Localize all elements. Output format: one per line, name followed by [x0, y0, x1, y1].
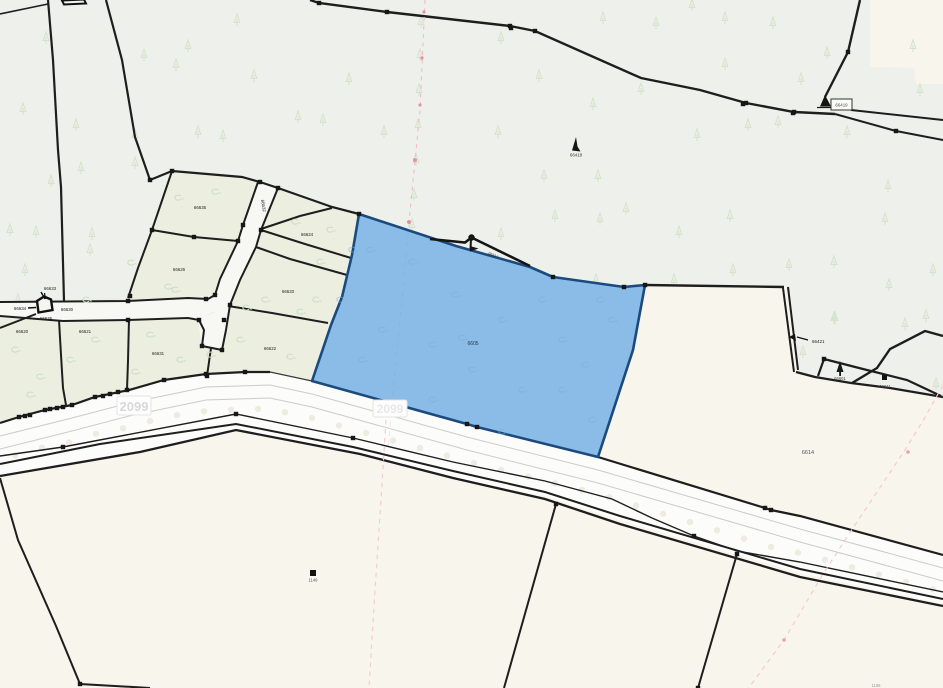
svg-text:6614: 6614 [802, 450, 814, 456]
svg-text:2099: 2099 [377, 402, 404, 416]
svg-text:1149: 1149 [308, 578, 318, 583]
svg-text:66620: 66620 [16, 329, 29, 334]
svg-text:66626: 66626 [173, 267, 186, 272]
svg-text:1158: 1158 [871, 683, 881, 688]
svg-text:66419: 66419 [835, 103, 848, 108]
svg-text:2099: 2099 [120, 399, 149, 414]
svg-text:66622: 66622 [264, 346, 277, 351]
svg-text:66633: 66633 [282, 289, 295, 294]
svg-text:66634: 66634 [14, 306, 27, 311]
svg-text:66635: 66635 [40, 316, 53, 321]
svg-text:66601: 66601 [834, 376, 846, 381]
svg-text:66621: 66621 [79, 329, 92, 334]
svg-text:66635: 66635 [194, 205, 207, 210]
svg-text:66611: 66611 [879, 384, 891, 389]
svg-text:66630: 66630 [61, 307, 74, 312]
svg-text:6605: 6605 [467, 341, 478, 347]
svg-text:66631: 66631 [152, 351, 165, 356]
svg-text:66624: 66624 [301, 232, 314, 237]
svg-text:66421: 66421 [812, 339, 825, 344]
svg-text:66633: 66633 [44, 286, 57, 291]
svg-text:66418: 66418 [570, 153, 583, 158]
